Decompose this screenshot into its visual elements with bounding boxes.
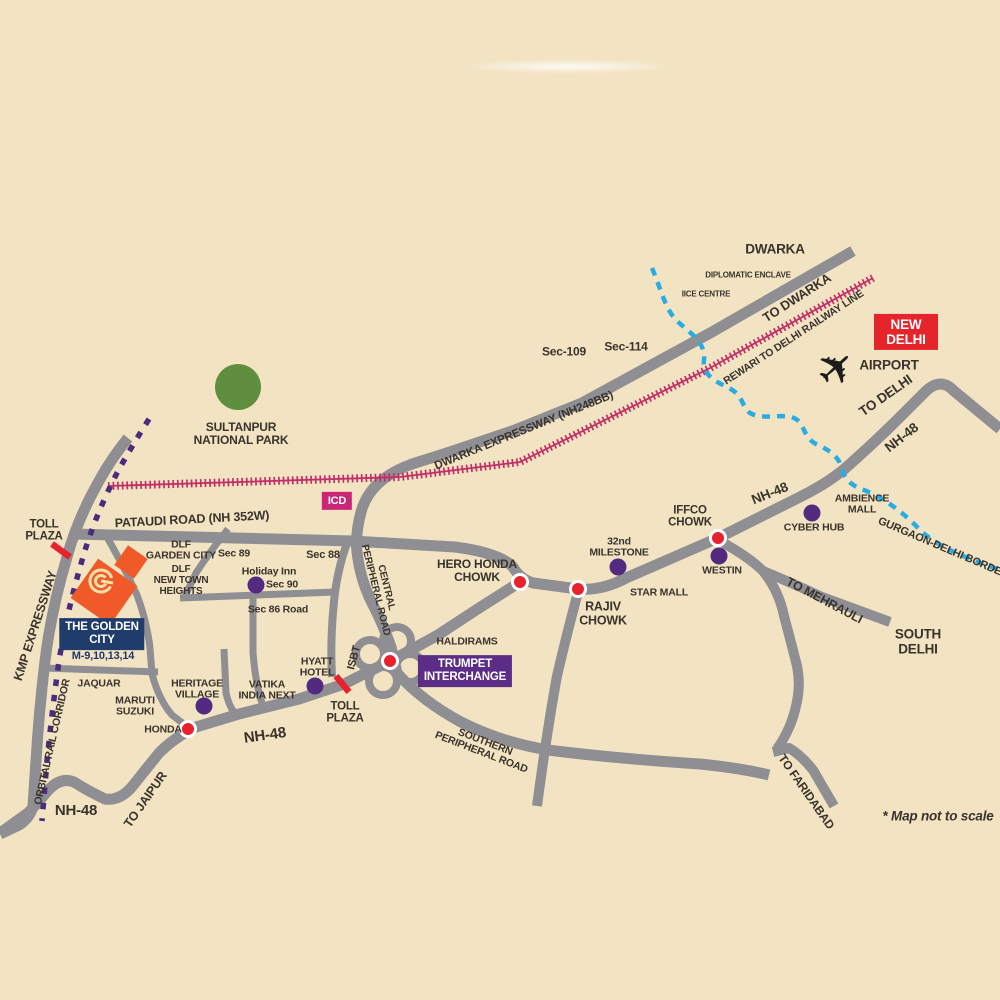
label-dlf-new-town-heights: DLF NEW TOWN HEIGHTS (154, 565, 209, 597)
honda-dot (181, 722, 196, 737)
road-jaquar (44, 668, 158, 672)
label-westin: WESTIN (702, 565, 742, 576)
label-dlf-garden-city: DLF GARDEN CITY (146, 540, 216, 563)
label-diplomatic-enclave: DIPLOMATIC ENCLAVE (705, 272, 790, 281)
sultanpur-park-circle (215, 364, 261, 410)
new-delhi-badge: NEW DELHI (874, 314, 938, 350)
iffco-chowk-dot (711, 531, 726, 546)
golden-city-site (71, 545, 148, 625)
trumpet-center-dot (383, 654, 398, 669)
label-toll-plaza-trumpet: TOLL PLAZA (326, 701, 363, 726)
label-dwarka: DWARKA (745, 243, 805, 258)
location-map: ✈ NEW DELHI ICD TRUMPET INTERCHANGE THE … (0, 0, 1000, 1000)
icd-badge: ICD (322, 492, 352, 510)
holiday-inn-dot (248, 577, 265, 594)
label-hyatt-hotel: HYATT HOTEL (300, 657, 335, 680)
label-toll-plaza-west: TOLL PLAZA (25, 519, 62, 544)
cyber-hub-dot (804, 505, 821, 522)
label-airport: AIRPORT (859, 359, 918, 374)
label-nh48-southwest: NH-48 (55, 803, 97, 819)
westin-dot (711, 548, 728, 565)
lens-flare (455, 60, 680, 73)
golden-city-badge: THE GOLDEN CITY (59, 618, 144, 650)
label-heritage-village: HERITAGE VILLAGE (171, 679, 223, 702)
label-sec-114: Sec-114 (604, 341, 647, 354)
label-sec-90: Sec 90 (266, 579, 298, 590)
label-vatika-india-next: VATIKA INDIA NEXT (238, 680, 295, 703)
label-32nd-milestone: 32nd MILESTONE (589, 537, 648, 560)
label-iffco-chowk: IFFCO CHOWK (668, 505, 712, 530)
label-sec-89: Sec 89 (218, 548, 250, 559)
label-iice-centre: IICE CENTRE (682, 291, 730, 300)
label-maruti-suzuki: MARUTI SUZUKI (115, 696, 155, 719)
label-sec-88: Sec 88 (306, 550, 340, 562)
label-sec-86-road: Sec 86 Road (248, 604, 308, 615)
label-holiday-inn: Holiday Inn (242, 566, 296, 577)
label-jaquar: JAQUAR (77, 678, 120, 689)
label-rajiv-chowk: RAJIV CHOWK (579, 601, 627, 628)
label-sec-109: Sec-109 (542, 346, 586, 359)
label-honda: HONDA (144, 724, 182, 735)
hyatt-dot (307, 678, 324, 695)
32nd-milestone-dot (610, 559, 627, 576)
label-star-mall: STAR MALL (630, 587, 688, 598)
label-map-note: * Map not to scale (882, 810, 993, 825)
golden-city-sectors: M-9,10,13,14 (72, 651, 134, 663)
trumpet-interchange-badge: TRUMPET INTERCHANGE (418, 655, 512, 687)
road-heritage (224, 649, 234, 712)
road-rajiv-south (537, 592, 578, 806)
label-south-delhi: SOUTH DELHI (877, 627, 959, 656)
label-cyber-hub: CYBER HUB (784, 522, 845, 533)
label-ambience-mall: AMBIENCE MALL (835, 494, 889, 517)
rajiv-chowk-dot (571, 582, 586, 597)
label-haldirams: HALDIRAMS (436, 636, 497, 647)
label-sultanpur-park: SULTANPUR NATIONAL PARK (194, 421, 289, 447)
label-hero-honda-chowk: HERO HONDA CHOWK (437, 558, 517, 584)
